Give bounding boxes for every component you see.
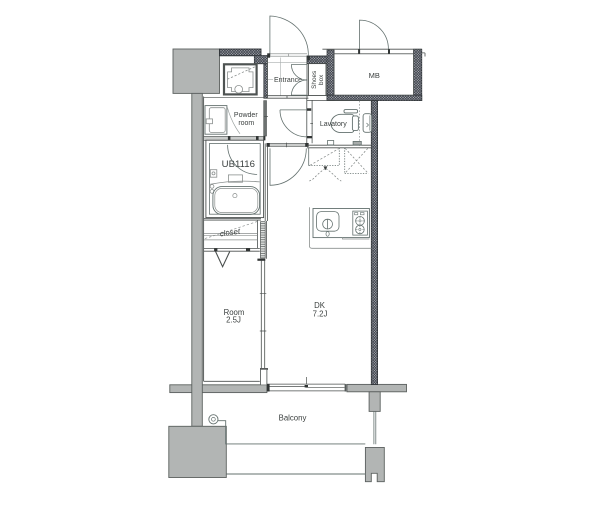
svg-text:2.5J: 2.5J [226, 315, 241, 324]
svg-text:Balcony: Balcony [279, 413, 307, 422]
svg-text:MB: MB [369, 71, 380, 80]
svg-text:Lavatory: Lavatory [320, 121, 347, 128]
svg-text:room: room [238, 120, 254, 127]
svg-text:box: box [318, 74, 325, 85]
svg-text:7.2J: 7.2J [313, 309, 328, 318]
svg-text:Powder: Powder [234, 112, 258, 119]
